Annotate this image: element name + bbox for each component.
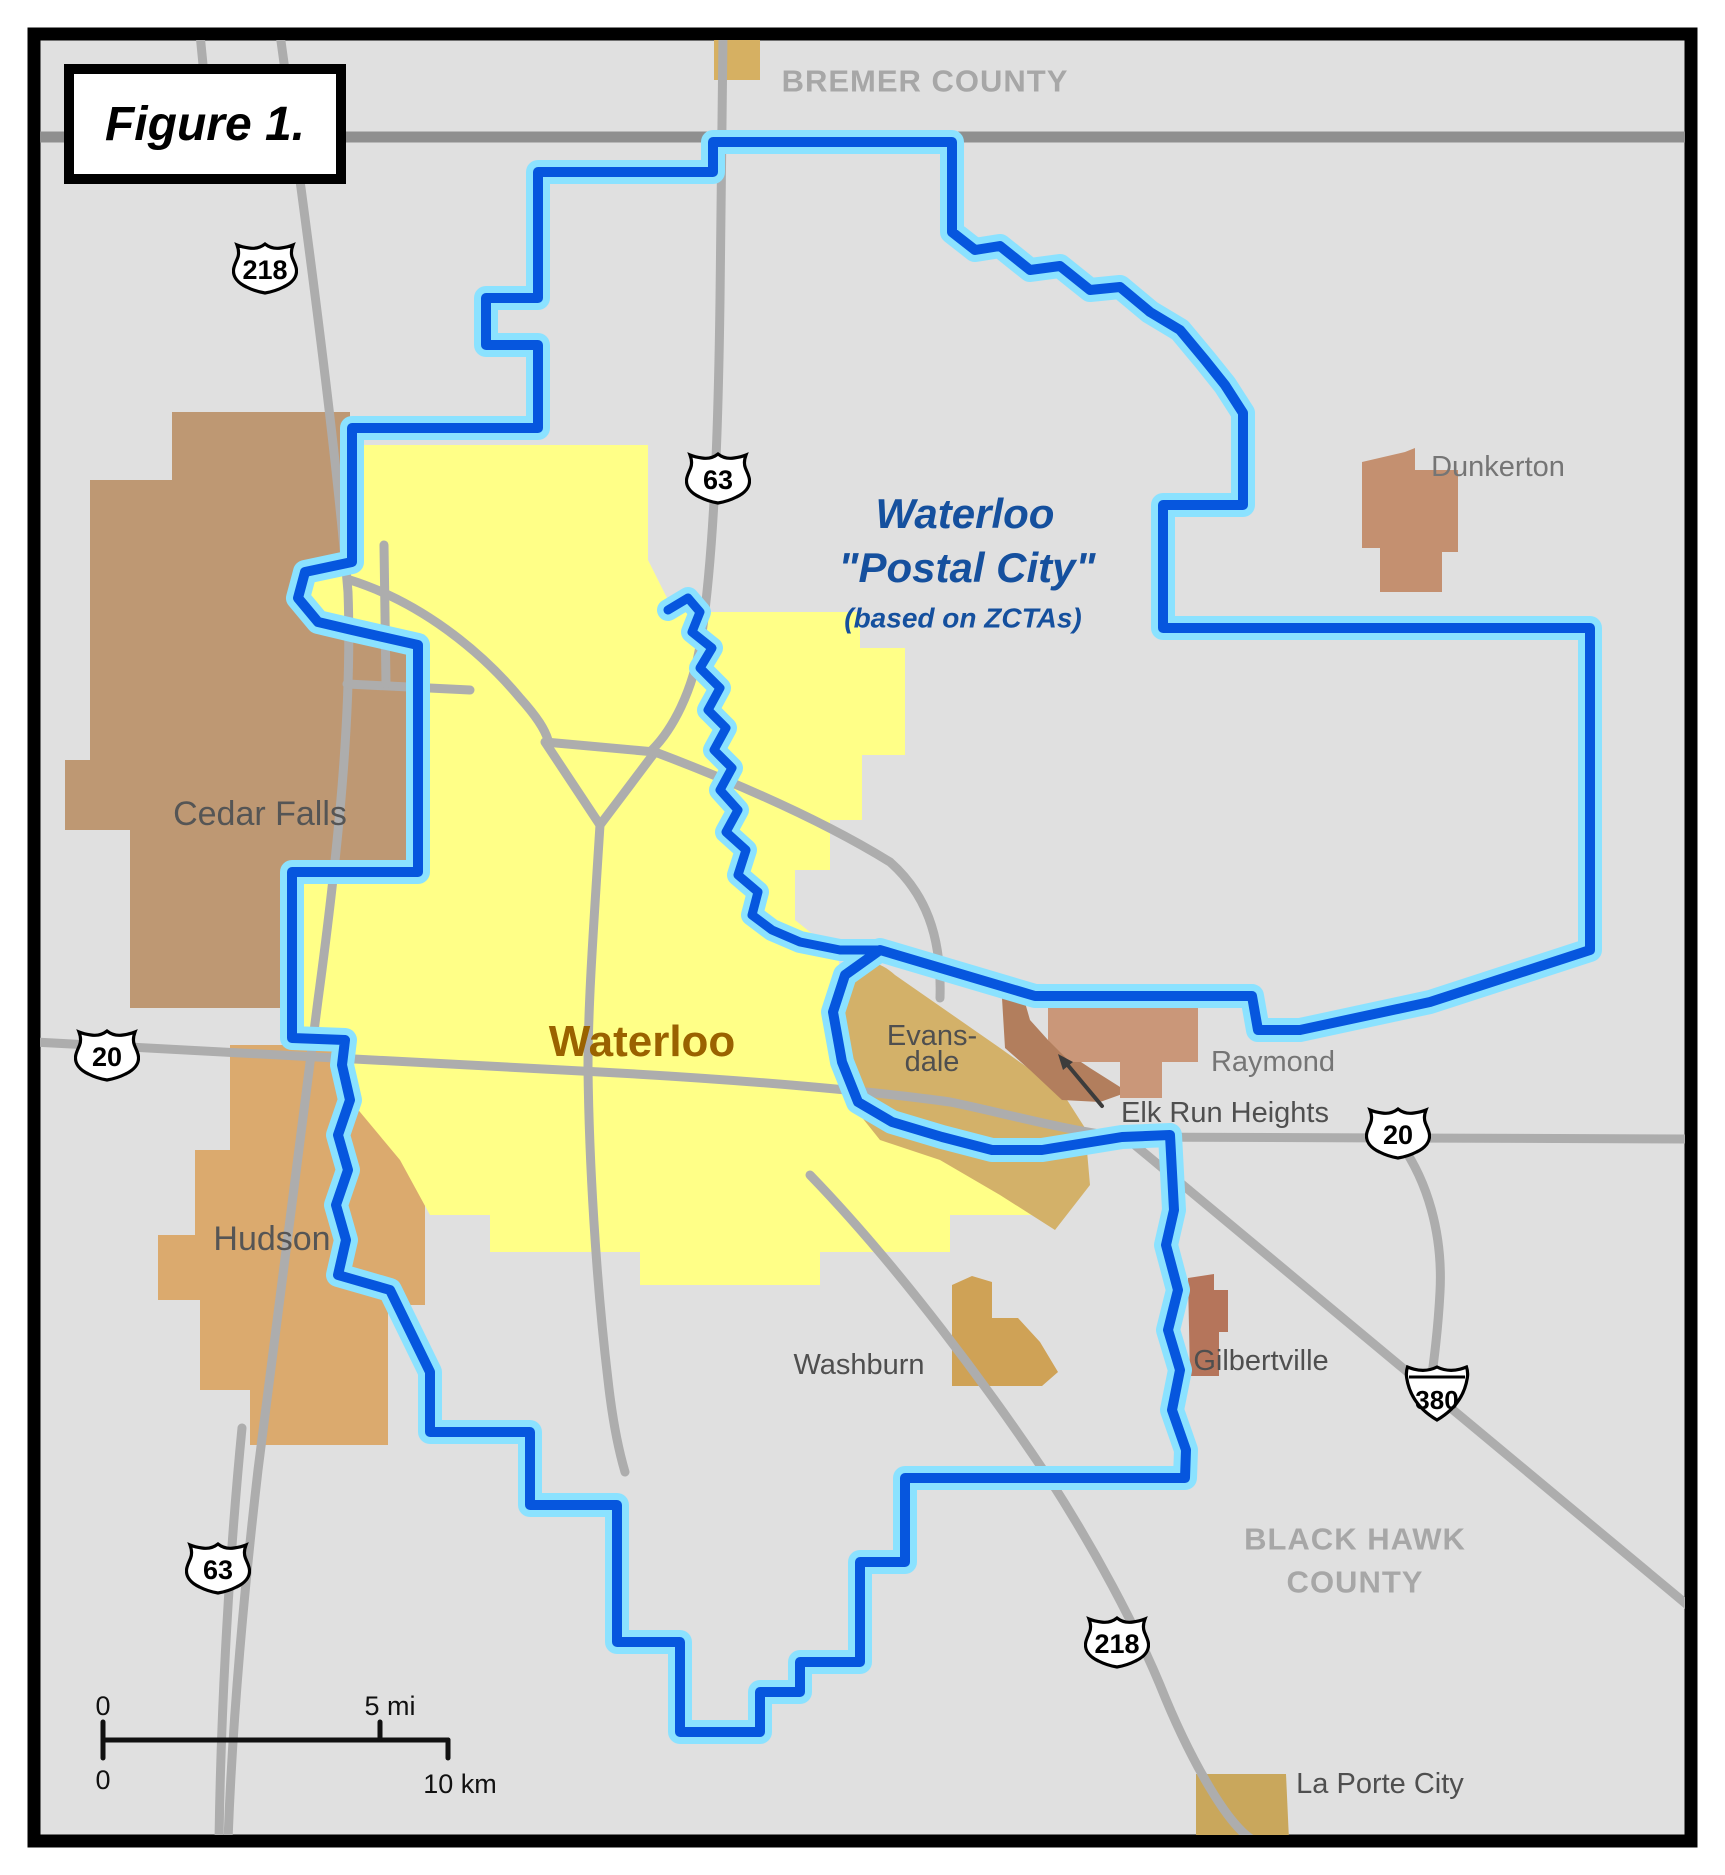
la-porte-city-label: La Porte City: [1296, 1769, 1464, 1799]
shield-number: 218: [232, 241, 298, 295]
shield-number: 218: [1084, 1615, 1150, 1669]
shield-number: 63: [685, 451, 751, 505]
us-218-shield-nw: 218: [232, 241, 298, 295]
waterloo-label: Waterloo: [549, 1019, 736, 1065]
elk-run-heights-label: Elk Run Heights: [1121, 1098, 1329, 1128]
black-hawk-county-label-line1: BLACK HAWK: [1244, 1524, 1466, 1557]
scale-mi-zero-label: 0: [95, 1692, 110, 1720]
road-cedar-falls-2: [384, 545, 386, 684]
interstate-380-shield: 380: [1404, 1360, 1470, 1424]
scale-km-max-label: 10 km: [423, 1770, 497, 1798]
raymond-label: Raymond: [1211, 1047, 1335, 1077]
us-63-shield-north: 63: [685, 451, 751, 505]
figure-title-box: Figure 1.: [64, 64, 346, 184]
shield-number: 20: [74, 1028, 140, 1082]
postal-city-label-line2: "Postal City": [839, 546, 1096, 590]
us-20-shield-west: 20: [74, 1028, 140, 1082]
figure-title: Figure 1.: [105, 97, 305, 152]
bremer-county-label: BREMER COUNTY: [782, 66, 1069, 99]
postal-city-label-line1: Waterloo: [876, 492, 1055, 536]
hudson-label: Hudson: [213, 1222, 330, 1258]
shield-number: 63: [185, 1541, 251, 1595]
dunkerton-label: Dunkerton: [1431, 452, 1565, 482]
us-63-shield-south: 63: [185, 1541, 251, 1595]
washburn-label: Washburn: [793, 1350, 924, 1380]
scale-km-zero-label: 0: [95, 1766, 110, 1794]
cedar-falls-label: Cedar Falls: [173, 797, 347, 833]
black-hawk-county-label-line2: COUNTY: [1287, 1567, 1424, 1600]
gilbertville-label: Gilbertville: [1193, 1346, 1328, 1376]
scale-mi-max-label: 5 mi: [364, 1692, 415, 1720]
postal-city-label-line3: (based on ZCTAs): [844, 603, 1081, 632]
us-218-shield-south: 218: [1084, 1615, 1150, 1669]
shield-number: 20: [1365, 1106, 1431, 1160]
evansdale-label-line2: dale: [905, 1047, 960, 1077]
shield-number: 380: [1404, 1360, 1470, 1424]
us-20-shield-east: 20: [1365, 1106, 1431, 1160]
